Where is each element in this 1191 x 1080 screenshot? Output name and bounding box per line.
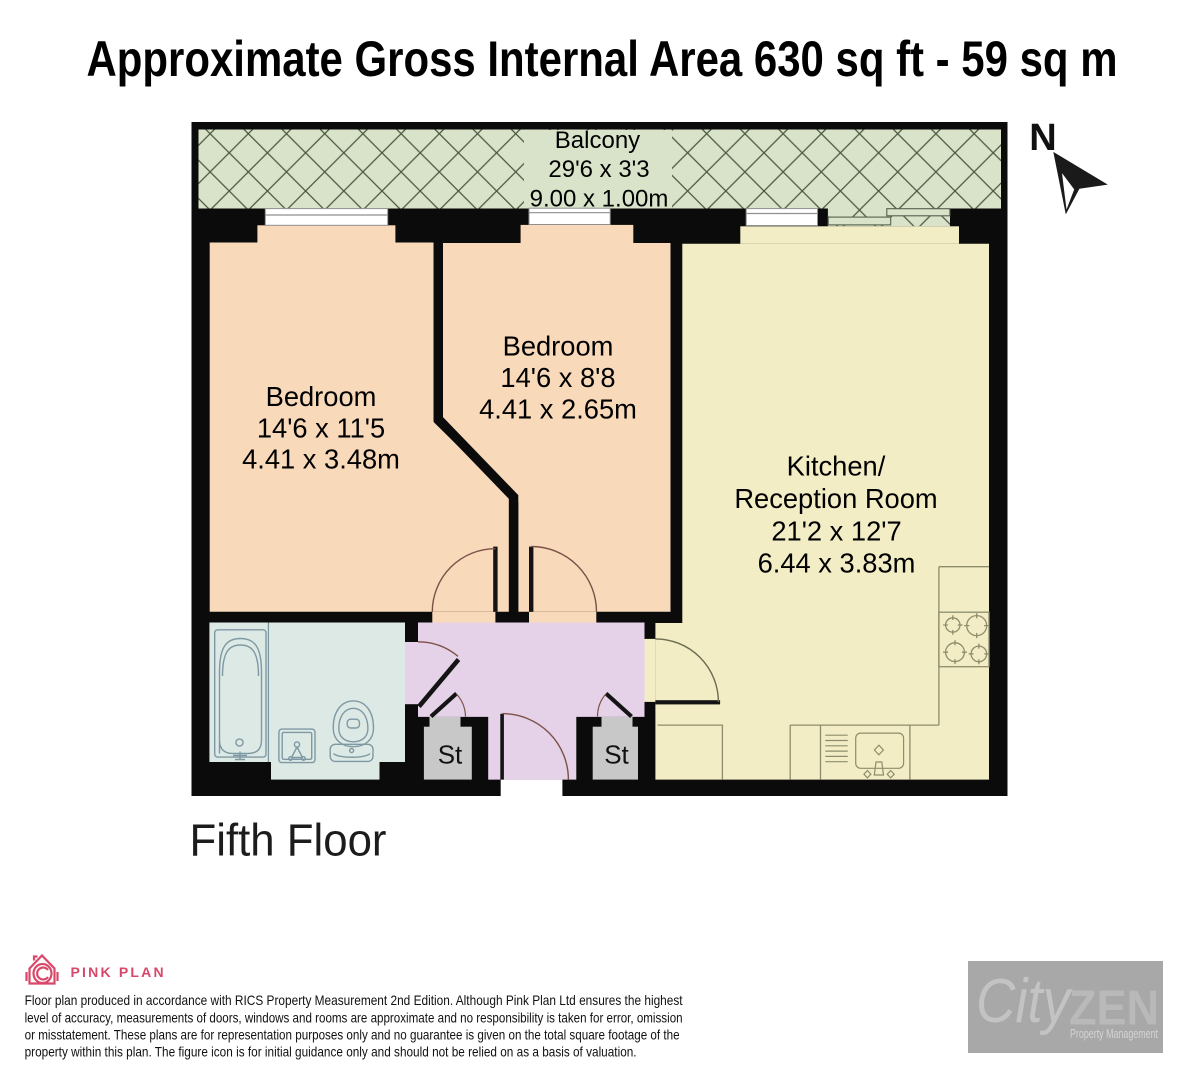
svg-text:City: City	[976, 967, 1074, 1036]
svg-text:level of accuracy, measurement: level of accuracy, measurements of doors…	[25, 1010, 683, 1025]
svg-text:Floor plan produced in accorda: Floor plan produced in accordance with R…	[25, 993, 683, 1008]
svg-text:or misstatement. These plans a: or misstatement. These plans are for rep…	[25, 1027, 680, 1042]
svg-text:Reception Room: Reception Room	[734, 483, 937, 514]
svg-text:Balcony: Balcony	[555, 127, 640, 154]
svg-text:14'6 x 8'8: 14'6 x 8'8	[500, 362, 615, 393]
svg-text:St: St	[604, 740, 629, 770]
svg-text:Kitchen/: Kitchen/	[787, 451, 886, 482]
svg-text:6.44 x 3.83m: 6.44 x 3.83m	[758, 548, 916, 579]
svg-text:14'6 x 11'5: 14'6 x 11'5	[257, 412, 385, 443]
svg-text:Bedroom: Bedroom	[266, 381, 377, 412]
svg-text:4.41 x 2.65m: 4.41 x 2.65m	[479, 394, 637, 425]
svg-text:PINK PLAN: PINK PLAN	[71, 964, 166, 980]
svg-text:Property Management: Property Management	[1070, 1027, 1158, 1041]
svg-text:4.41 x 3.48m: 4.41 x 3.48m	[242, 444, 400, 475]
svg-text:29'6 x 3'3: 29'6 x 3'3	[548, 156, 649, 183]
svg-text:21'2 x 12'7: 21'2 x 12'7	[771, 516, 901, 547]
svg-text:Bedroom: Bedroom	[503, 330, 614, 361]
svg-text:Approximate Gross Internal Are: Approximate Gross Internal Area 630 sq f…	[87, 31, 1118, 87]
svg-text:Fifth Floor: Fifth Floor	[190, 815, 387, 866]
svg-text:N: N	[1029, 117, 1056, 159]
svg-text:St: St	[438, 740, 463, 770]
svg-text:property within this plan. The: property within this plan. The figure ic…	[25, 1045, 637, 1060]
